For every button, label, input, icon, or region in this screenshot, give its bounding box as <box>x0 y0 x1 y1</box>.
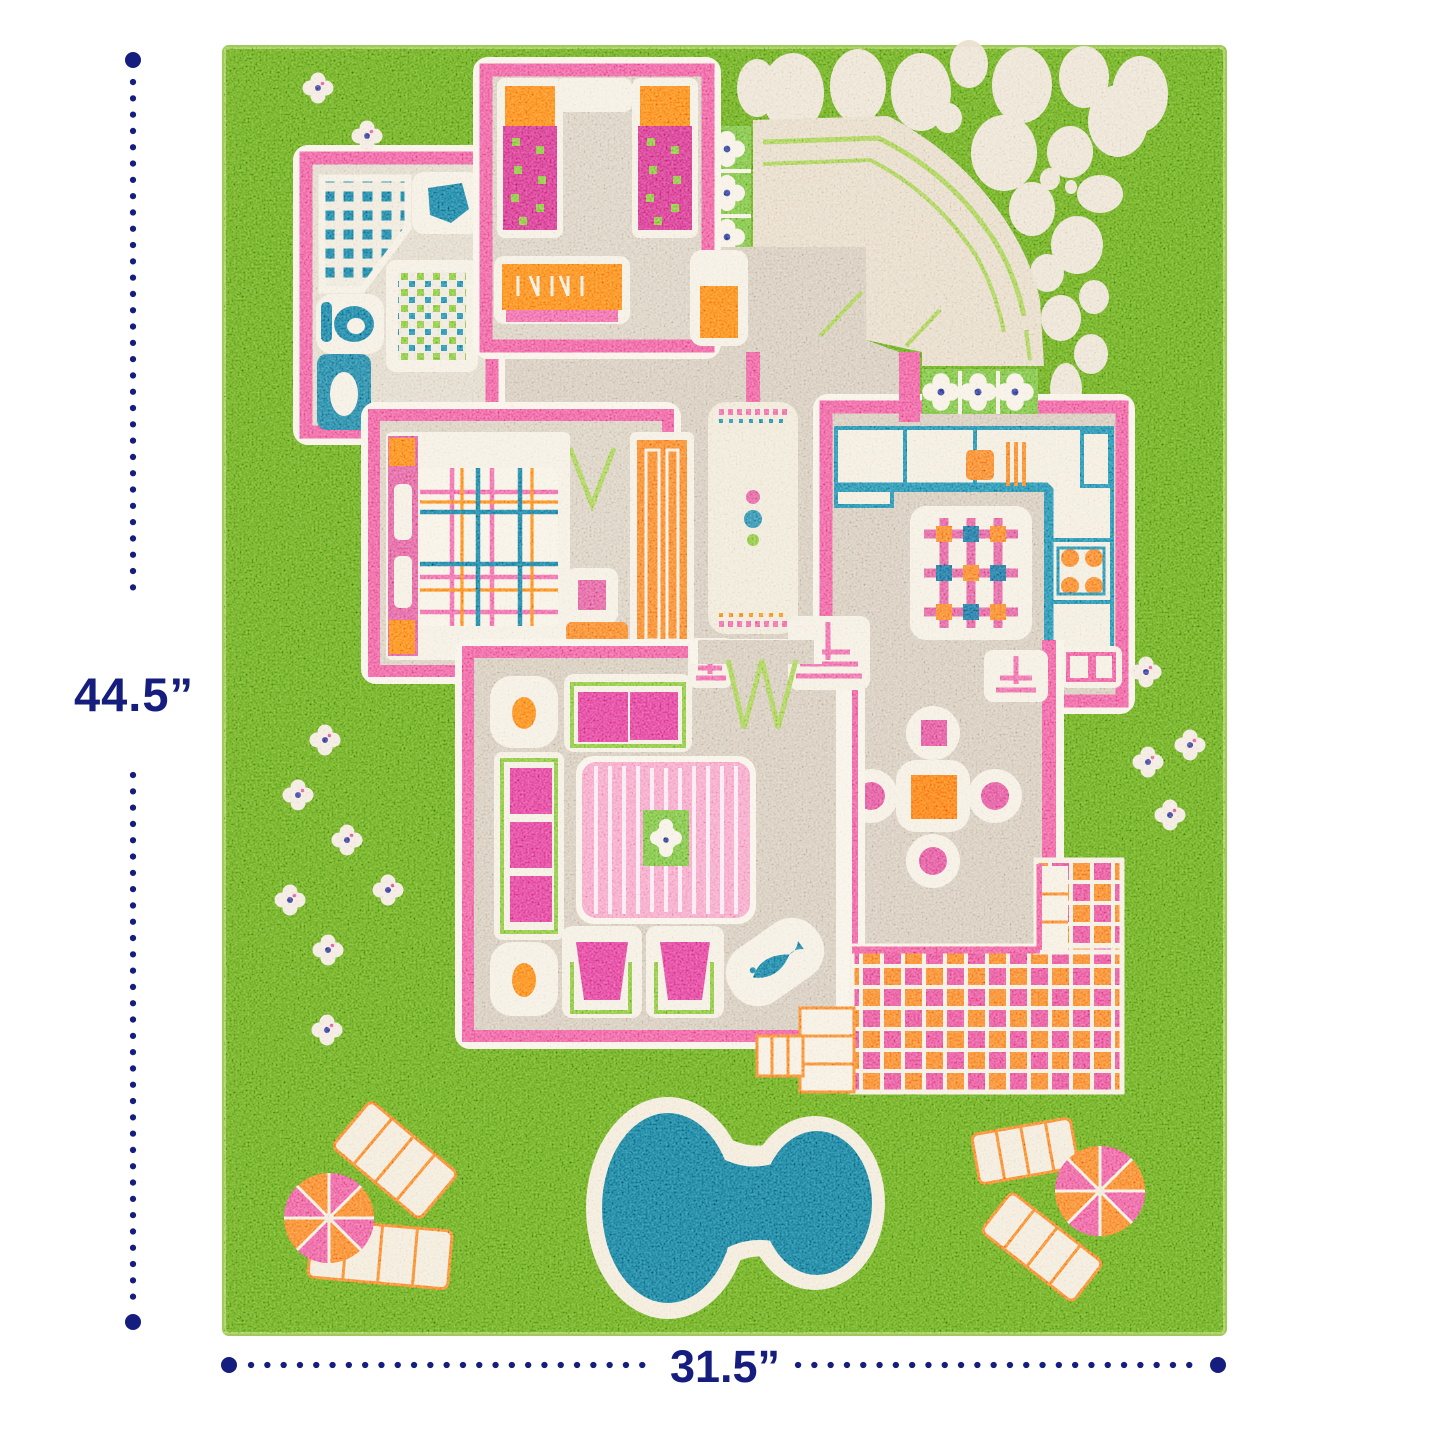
svg-text:44.5”: 44.5” <box>74 668 194 721</box>
svg-text:31.5”: 31.5” <box>670 1341 780 1392</box>
